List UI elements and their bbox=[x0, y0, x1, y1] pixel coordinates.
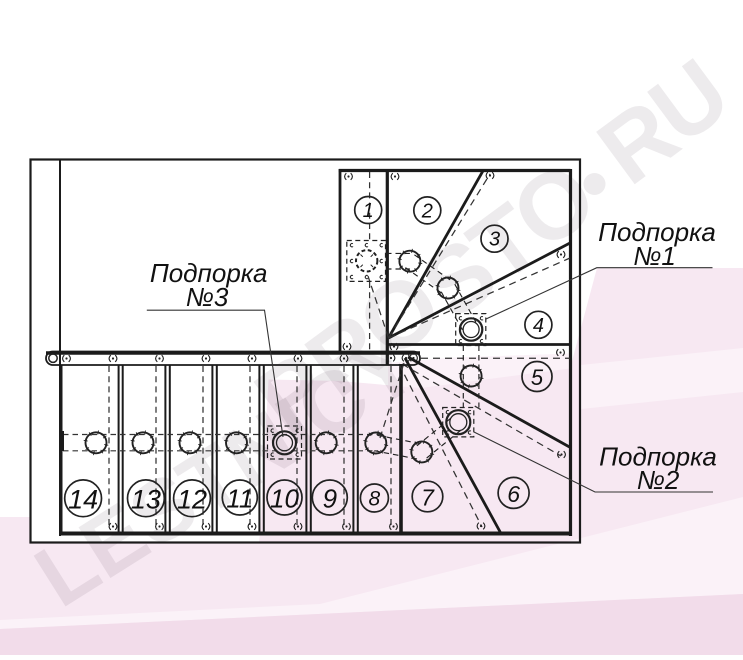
svg-text:2: 2 bbox=[421, 200, 433, 222]
svg-text:7: 7 bbox=[421, 485, 435, 511]
svg-text:9: 9 bbox=[323, 484, 337, 514]
svg-text:12: 12 bbox=[177, 484, 207, 514]
svg-text:14: 14 bbox=[68, 484, 98, 514]
svg-text:10: 10 bbox=[270, 484, 299, 514]
svg-text:6: 6 bbox=[507, 481, 520, 507]
svg-text:№1: №1 bbox=[633, 241, 676, 271]
svg-text:11: 11 bbox=[226, 484, 253, 514]
svg-text:3: 3 bbox=[489, 229, 500, 251]
svg-text:8: 8 bbox=[369, 488, 381, 511]
svg-text:1: 1 bbox=[363, 200, 374, 222]
svg-text:№3: №3 bbox=[186, 282, 229, 312]
svg-text:13: 13 bbox=[131, 484, 161, 514]
svg-text:№2: №2 bbox=[637, 465, 680, 495]
svg-text:4: 4 bbox=[533, 315, 544, 337]
svg-text:5: 5 bbox=[531, 365, 544, 390]
